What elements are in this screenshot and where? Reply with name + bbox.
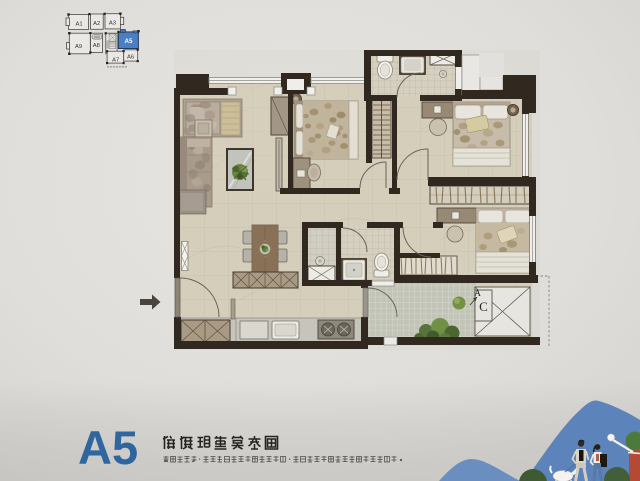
svg-text:A5: A5 bbox=[125, 38, 133, 45]
svg-text:A8: A8 bbox=[93, 43, 100, 49]
svg-text:A6: A6 bbox=[127, 54, 134, 60]
svg-text:A9: A9 bbox=[75, 44, 82, 50]
svg-text:A2: A2 bbox=[93, 21, 100, 27]
svg-text:A7: A7 bbox=[112, 57, 119, 63]
svg-text:A5: A5 bbox=[78, 421, 138, 474]
svg-text:A3: A3 bbox=[109, 21, 116, 27]
svg-text:A1: A1 bbox=[75, 21, 82, 27]
